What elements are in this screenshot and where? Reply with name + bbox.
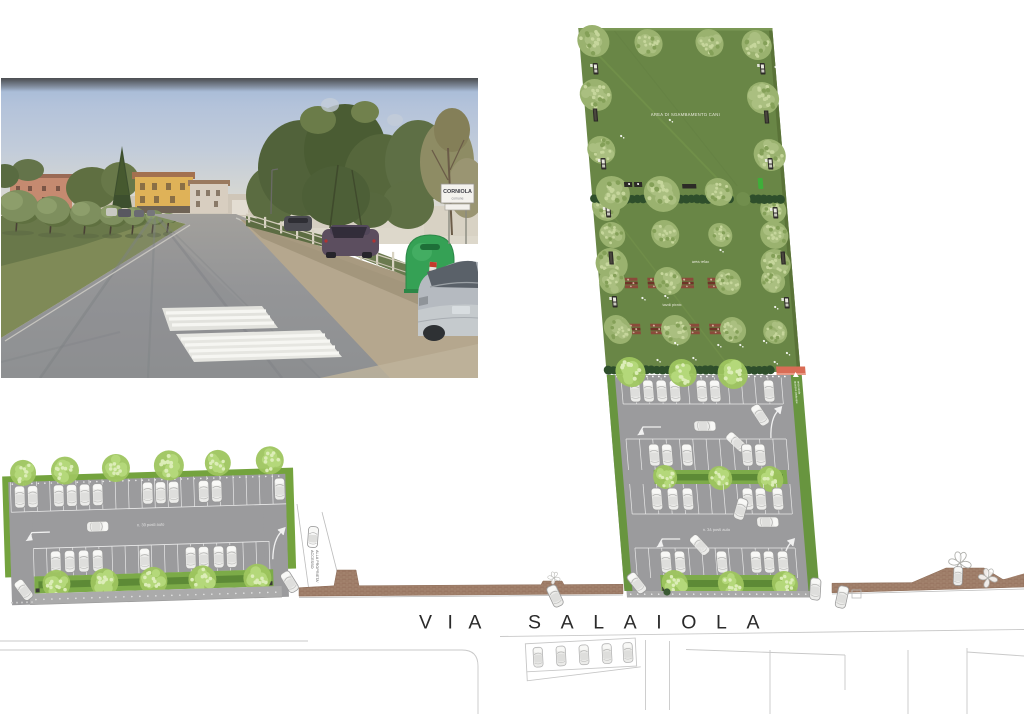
- svg-text:CORNIOLA: CORNIOLA: [443, 189, 472, 195]
- svg-text:ALLA PROPRIETA': ALLA PROPRIETA': [315, 550, 319, 583]
- svg-text:AREA DI SGAMBAMENTO CANI: AREA DI SGAMBAMENTO CANI: [651, 112, 721, 117]
- svg-text:VIA: VIA: [419, 612, 497, 634]
- svg-text:SALAIOLA: SALAIOLA: [528, 612, 779, 634]
- svg-text:ACCESSO: ACCESSO: [310, 550, 314, 569]
- svg-text:area relax: area relax: [692, 259, 710, 264]
- svg-text:tavoli picnic: tavoli picnic: [662, 303, 682, 307]
- svg-text:n. 30 posti auto: n. 30 posti auto: [137, 522, 165, 528]
- svg-text:n. 34 posti auto: n. 34 posti auto: [703, 527, 731, 532]
- svg-text:comune: comune: [451, 197, 463, 201]
